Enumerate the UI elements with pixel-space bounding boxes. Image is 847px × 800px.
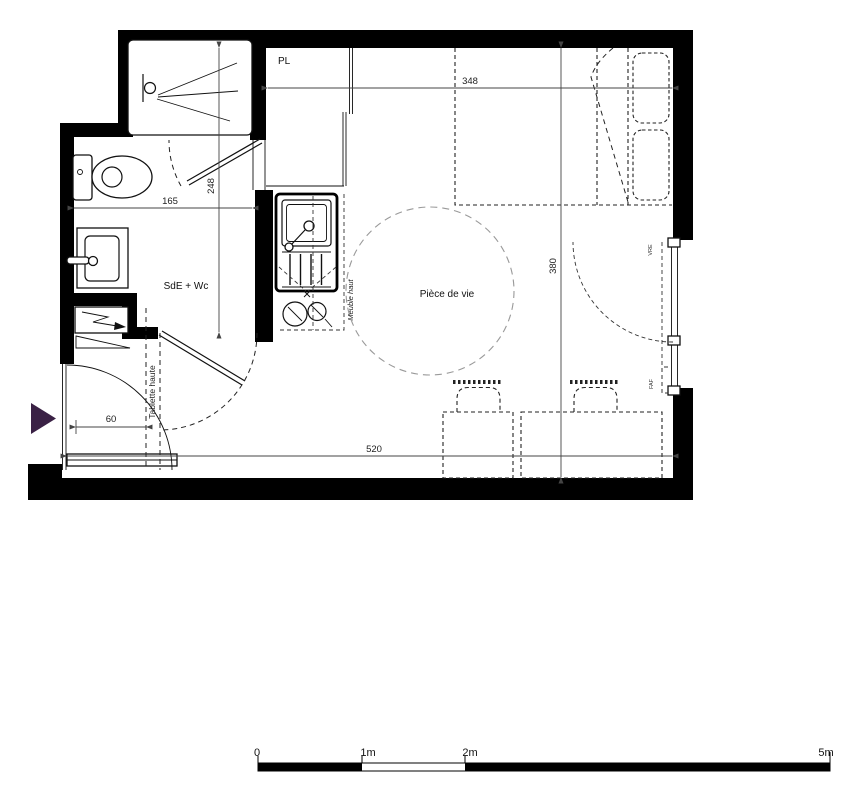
toilet: [73, 155, 152, 200]
burners: [283, 302, 332, 327]
window-swing-arc: [573, 242, 673, 342]
sink-unit: [276, 194, 337, 291]
window-type-label: FAF: [649, 378, 655, 389]
chair: [453, 382, 503, 412]
scale-tick-0: 0: [254, 747, 260, 759]
kitchenette: Meuble haut: [276, 194, 355, 330]
electrical-panel: [75, 307, 130, 348]
entrance-arrow-icon: [31, 403, 56, 434]
floor-plan-page: Tablette haute Meuble haut: [0, 0, 847, 800]
bed: [455, 48, 672, 205]
upper-cabinet-label: Meuble haut: [346, 278, 355, 320]
bathroom-label: SdE + Wc: [164, 281, 209, 292]
dim-living-depth: 380: [548, 258, 559, 274]
scale-bar: 0 1m 2m 5m: [254, 747, 834, 771]
closet-sliding-door: [343, 48, 353, 186]
dim-bathroom-width: 165: [162, 196, 178, 207]
dining-table: [443, 382, 662, 478]
faucet-icon: [67, 257, 89, 264]
washbasin: [67, 228, 128, 288]
dim-entry-clearance: 60: [106, 414, 117, 425]
pillow: [633, 130, 669, 200]
floor-plan-drawing: Tablette haute Meuble haut: [0, 0, 847, 800]
sink-faucet-icon: [304, 221, 314, 231]
chair: [570, 382, 620, 412]
living-room-label: Pièce de vie: [420, 289, 475, 300]
dim-total-width: 520: [366, 444, 382, 455]
scale-tick-2m: 2m: [462, 747, 477, 759]
bathroom-door: [159, 331, 257, 430]
window-shutter-label: VRE: [648, 244, 654, 256]
scale-tick-5m: 5m: [818, 747, 833, 759]
dim-bathroom-depth: 248: [206, 178, 217, 194]
closet-label: PL: [278, 56, 291, 67]
window: VRE FAF: [573, 238, 680, 395]
shower: [128, 40, 252, 135]
scale-tick-1m: 1m: [360, 747, 375, 759]
high-shelf-label: Tablette haute: [147, 365, 157, 419]
dim-living-width: 348: [462, 76, 478, 87]
